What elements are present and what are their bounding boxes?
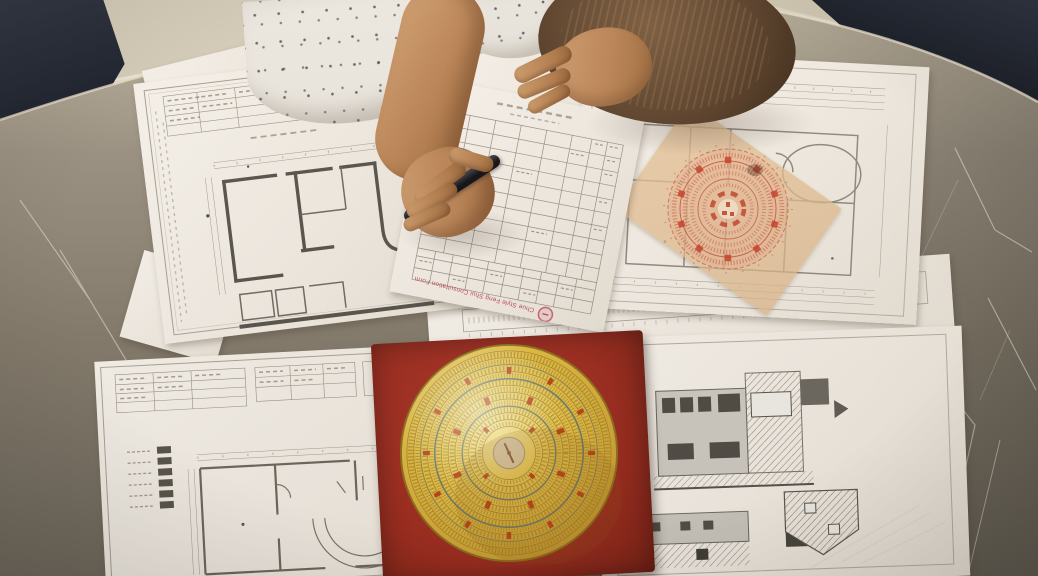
upper-elevation — [650, 370, 851, 490]
lower-left-elevation — [638, 511, 750, 569]
luopan-compass — [396, 342, 622, 564]
legend — [127, 446, 174, 510]
photo-scene: Chue Style Feng Shui Consultation Form — [0, 0, 1038, 576]
walls — [224, 160, 409, 280]
luopan-chart-print — [658, 139, 798, 279]
